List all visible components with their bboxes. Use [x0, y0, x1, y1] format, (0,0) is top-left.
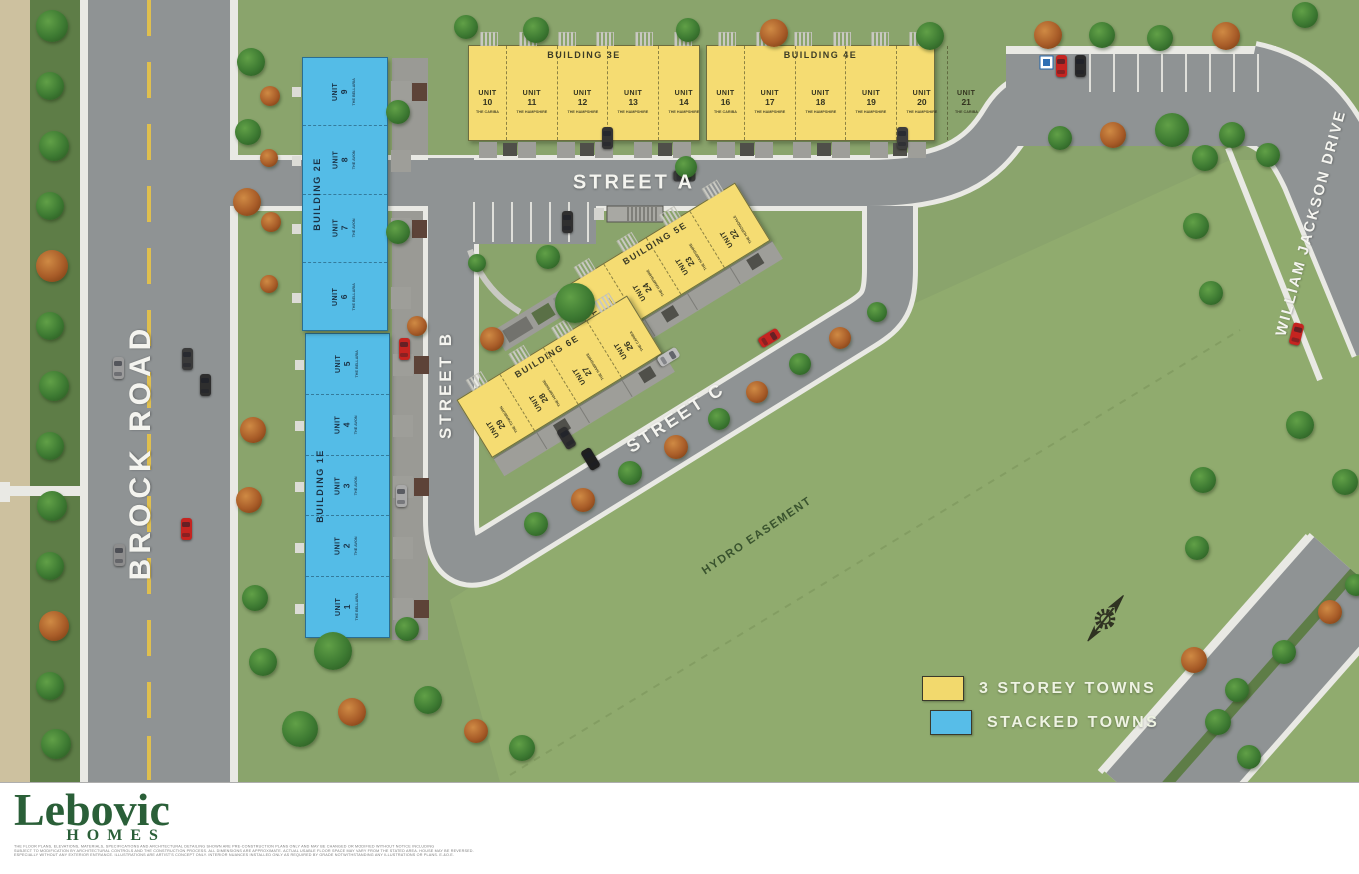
unit-model-name: THE CARIBA — [955, 110, 978, 114]
unit-model-name: THE HAMPSHIRE — [567, 110, 598, 114]
lebovic-logo: Lebovic HOMES — [14, 787, 170, 845]
unit-17[interactable]: UNIT17THE HAMPSHIRE — [744, 46, 795, 140]
tree-icon — [1219, 122, 1245, 148]
disclaimer: THE FLOOR PLANS, ELEVATIONS, MATERIALS, … — [14, 845, 498, 858]
unit-model-name: THE AVON — [352, 219, 356, 238]
unit-number: 14 — [679, 98, 688, 108]
entry-step — [292, 156, 301, 166]
driveway-pad — [557, 142, 575, 158]
entry-step — [295, 543, 304, 553]
unit-model-name: THE HAMPSHIRE — [668, 110, 699, 114]
unit-number: 1 — [343, 605, 353, 610]
tree-icon — [524, 512, 548, 536]
car-icon — [562, 211, 573, 233]
driveway-pad — [393, 415, 413, 437]
rear-patio — [596, 32, 614, 46]
tree-icon — [36, 432, 64, 460]
driveway-pad — [479, 142, 497, 158]
unit-model-name: THE HAMPSHIRE — [516, 110, 547, 114]
mail-kiosk — [607, 206, 663, 222]
tree-icon — [1286, 411, 1314, 439]
footer: Lebovic HOMES THE FLOOR PLANS, ELEVATION… — [0, 782, 1359, 874]
building-1e: BUILDING 1EUNIT5THE BELLARIAUNIT4THE AVO… — [305, 333, 390, 638]
unit-number: 10 — [483, 98, 492, 108]
tree-icon — [1190, 467, 1216, 493]
tree-icon — [395, 617, 419, 641]
rear-patio — [833, 32, 851, 46]
unit-model-name: THE HAMPSHIRE — [805, 110, 836, 114]
unit-number: 3 — [343, 483, 353, 488]
tree-icon — [676, 18, 700, 42]
unit-number: 20 — [917, 98, 926, 108]
driveway-pad — [755, 142, 773, 158]
tree-icon — [1181, 647, 1207, 673]
tree-icon — [260, 149, 278, 167]
unit-12[interactable]: UNIT12THE HAMPSHIRE — [557, 46, 608, 140]
parking-pad — [740, 143, 754, 156]
driveway-pad — [908, 142, 926, 158]
unit-14[interactable]: UNIT14THE HAMPSHIRE — [658, 46, 709, 140]
tree-icon — [282, 711, 318, 747]
entry-step — [295, 604, 304, 614]
unit-10[interactable]: UNIT10THE CARIBA — [469, 46, 506, 140]
unit-number: 16 — [721, 98, 730, 108]
tree-icon — [249, 648, 277, 676]
unit-number: 5 — [343, 362, 353, 367]
unit-number: 21 — [961, 98, 970, 108]
rear-patio — [480, 32, 498, 46]
unit-5[interactable]: UNIT5THE BELLARIA — [306, 334, 389, 394]
rear-patio — [871, 32, 889, 46]
tree-icon — [386, 100, 410, 124]
car-icon — [182, 348, 193, 370]
unit-1[interactable]: UNIT1THE BELLARIA — [306, 576, 389, 637]
entry-step — [292, 293, 301, 303]
driveway-pad — [391, 150, 411, 172]
rear-patio — [635, 32, 653, 46]
unit-number: 13 — [628, 98, 637, 108]
tree-icon — [39, 371, 69, 401]
legend: 3 STOREY TOWNS STACKED TOWNS — [922, 676, 1159, 744]
edge-notch — [0, 482, 10, 502]
unit-6[interactable]: UNIT6THE BELLARIA — [303, 262, 387, 330]
tree-icon — [41, 729, 71, 759]
unit-21[interactable]: UNIT21THE CARIBA — [947, 46, 985, 140]
tree-icon — [555, 283, 595, 323]
tree-icon — [37, 491, 67, 521]
driveway-pad — [717, 142, 735, 158]
car-icon — [399, 338, 410, 360]
unit-model-name: THE BELLARIA — [352, 78, 356, 105]
tree-icon — [240, 417, 266, 443]
unit-model-name: THE HAMPSHIRE — [906, 110, 937, 114]
tree-icon — [1225, 678, 1249, 702]
tree-icon — [36, 72, 64, 100]
tree-icon — [1089, 22, 1115, 48]
rear-patio — [718, 32, 736, 46]
tree-icon — [916, 22, 944, 50]
tree-icon — [746, 381, 768, 403]
driveway-pad — [518, 142, 536, 158]
tree-icon — [1332, 469, 1358, 495]
tree-icon — [1292, 2, 1318, 28]
unit-number: 11 — [527, 98, 536, 108]
unit-number: 9 — [340, 89, 350, 94]
tree-icon — [235, 119, 261, 145]
entry-step — [292, 224, 301, 234]
tree-icon — [618, 461, 642, 485]
car-icon — [1075, 55, 1086, 77]
tree-icon — [1183, 213, 1209, 239]
unit-number: 29 — [495, 418, 508, 431]
driveway-pad — [793, 142, 811, 158]
tree-icon — [1212, 22, 1240, 50]
unit-number: 6 — [340, 294, 350, 299]
tree-icon — [233, 188, 261, 216]
unit-number: 19 — [866, 98, 875, 108]
tree-icon — [237, 48, 265, 76]
driveway-pad — [391, 287, 411, 309]
unit-model-name: THE HAMPSHIRE — [754, 110, 785, 114]
building-2e: BUILDING 2EUNIT9THE BELLARIAUNIT8THE AVO… — [302, 57, 388, 331]
unit-model-name: THE AVON — [352, 150, 356, 169]
tree-icon — [1048, 126, 1072, 150]
parking-pad — [503, 143, 517, 156]
tree-icon — [454, 15, 478, 39]
unit-number: 27 — [581, 365, 594, 378]
tree-icon — [1192, 145, 1218, 171]
tree-icon — [36, 312, 64, 340]
unit-model-name: THE BELLARIA — [352, 283, 356, 310]
unit-16[interactable]: UNIT16THE CARIBA — [707, 46, 744, 140]
driveway-pad — [870, 142, 888, 158]
tree-icon — [1318, 600, 1342, 624]
tree-icon — [36, 192, 64, 220]
rear-patio — [558, 32, 576, 46]
tree-icon — [1205, 709, 1231, 735]
unit-model-name: THE CARIBA — [714, 110, 737, 114]
unit-model-name: THE CARIBA — [476, 110, 499, 114]
entry-step — [295, 360, 304, 370]
unit-number: 17 — [765, 98, 774, 108]
tree-icon — [39, 131, 69, 161]
tree-icon — [260, 275, 278, 293]
street-b-parking — [470, 200, 596, 244]
parking-pad — [580, 143, 594, 156]
accessible-symbol — [1043, 59, 1050, 66]
car-icon — [200, 374, 211, 396]
disclaimer-line: ESPECIALLY WITHOUT ANY EXTERIOR ENTRANCE… — [14, 854, 498, 858]
unit-number: 22 — [728, 228, 741, 241]
tree-icon — [480, 327, 504, 351]
tree-icon — [407, 316, 427, 336]
unit-model-name: THE HAMPSHIRE — [618, 110, 649, 114]
tree-icon — [468, 254, 486, 272]
unit-number: 2 — [343, 544, 353, 549]
tree-icon — [36, 552, 64, 580]
tree-icon — [261, 212, 281, 232]
tree-icon — [1237, 745, 1261, 769]
car-icon — [114, 544, 125, 566]
tree-icon — [536, 245, 560, 269]
entry-step — [292, 87, 301, 97]
site-plan-page: BROCK ROAD STREET A STREET B STREET C WI… — [0, 0, 1359, 874]
tree-icon — [789, 353, 811, 375]
brock-road-label: BROCK ROAD — [124, 324, 158, 581]
tree-icon — [36, 250, 68, 282]
unit-model-name: THE AVON — [355, 537, 359, 556]
driveway-pad — [634, 142, 652, 158]
tree-icon — [39, 611, 69, 641]
tree-icon — [386, 220, 410, 244]
driveway-pad — [393, 537, 413, 559]
street-a-label: STREET A — [573, 172, 695, 195]
tree-icon — [1256, 143, 1280, 167]
unit-model-name: THE HAMPSHIRE — [856, 110, 887, 114]
parking-pad — [658, 143, 672, 156]
legend-label-stacked: STACKED TOWNS — [987, 714, 1159, 732]
tree-icon — [1272, 640, 1296, 664]
unit-model-name: THE AVON — [355, 415, 359, 434]
rear-deck — [412, 83, 427, 101]
building-label: BUILDING 2E — [312, 157, 322, 231]
tree-icon — [760, 19, 788, 47]
tree-icon — [829, 327, 851, 349]
kiosk-pad — [594, 208, 604, 220]
site-plan-map: BROCK ROAD STREET A STREET B STREET C WI… — [0, 0, 1359, 782]
building-label: BUILDING 1E — [315, 449, 325, 523]
tree-icon — [260, 86, 280, 106]
driveway-pad — [832, 142, 850, 158]
tree-icon — [1185, 536, 1209, 560]
entry-step — [295, 421, 304, 431]
tree-icon — [314, 632, 352, 670]
unit-number: 4 — [343, 422, 353, 427]
tree-icon — [571, 488, 595, 512]
rear-patio — [794, 32, 812, 46]
legend-row-stacked: STACKED TOWNS — [930, 710, 1159, 735]
rear-deck — [412, 220, 427, 238]
parking-pad — [817, 143, 831, 156]
tree-icon — [664, 435, 688, 459]
centerline-solid — [147, 736, 151, 766]
centerline-solid — [147, 6, 151, 36]
unit-model-name: THE BELLARIA — [355, 593, 359, 620]
north-arrow-icon — [1076, 586, 1134, 652]
tree-icon — [236, 487, 262, 513]
legend-swatch-3-storey — [922, 676, 964, 701]
rear-deck — [414, 478, 429, 496]
car-icon — [181, 518, 192, 540]
car-icon — [113, 357, 124, 379]
tree-icon — [509, 735, 535, 761]
tree-icon — [414, 686, 442, 714]
unit-model-name: THE AVON — [355, 476, 359, 495]
legend-label-3-storey: 3 STOREY TOWNS — [979, 680, 1156, 698]
tree-icon — [867, 302, 887, 322]
rear-deck — [414, 600, 429, 618]
unit-model-name: THE BELLARIA — [355, 350, 359, 377]
tree-icon — [242, 585, 268, 611]
driveway-pad — [393, 598, 413, 620]
car-icon — [602, 127, 613, 149]
unit-4[interactable]: UNIT4THE AVON — [306, 394, 389, 455]
tree-icon — [1147, 25, 1173, 51]
unit-11[interactable]: UNIT11THE HAMPSHIRE — [506, 46, 557, 140]
car-icon — [396, 485, 407, 507]
street-b-label: STREET B — [436, 331, 456, 439]
unit-18[interactable]: UNIT18THE HAMPSHIRE — [795, 46, 846, 140]
tree-icon — [1034, 21, 1062, 49]
unit-number: 24 — [641, 281, 654, 294]
legend-row-3-storey: 3 STOREY TOWNS — [922, 676, 1159, 701]
entry-step — [295, 482, 304, 492]
tree-icon — [36, 10, 68, 42]
tree-icon — [523, 17, 549, 43]
tree-icon — [338, 698, 366, 726]
building-3e: BUILDING 3EUNIT10THE CARIBAUNIT11THE HAM… — [468, 45, 700, 141]
unit-9[interactable]: UNIT9THE BELLARIA — [303, 58, 387, 125]
unit-13[interactable]: UNIT13THE HAMPSHIRE — [607, 46, 658, 140]
rear-deck — [414, 356, 429, 374]
unit-number: 18 — [816, 98, 825, 108]
legend-swatch-stacked — [930, 710, 972, 735]
unit-19[interactable]: UNIT19THE HAMPSHIRE — [845, 46, 896, 140]
tree-icon — [1155, 113, 1189, 147]
unit-2[interactable]: UNIT2THE AVON — [306, 515, 389, 576]
unit-number: 8 — [340, 158, 350, 163]
car-icon — [897, 127, 908, 149]
tree-icon — [1199, 281, 1223, 305]
unit-number: 7 — [340, 226, 350, 231]
building-label: BUILDING 3E — [469, 50, 699, 60]
unit-number: 12 — [578, 98, 587, 108]
building-label: BUILDING 4E — [707, 50, 934, 60]
tree-icon — [708, 408, 730, 430]
tree-icon — [464, 719, 488, 743]
left-verge — [0, 0, 30, 782]
tree-icon — [36, 672, 64, 700]
tree-icon — [1100, 122, 1126, 148]
unit-20[interactable]: UNIT20THE HAMPSHIRE — [896, 46, 947, 140]
car-icon — [1056, 55, 1067, 77]
